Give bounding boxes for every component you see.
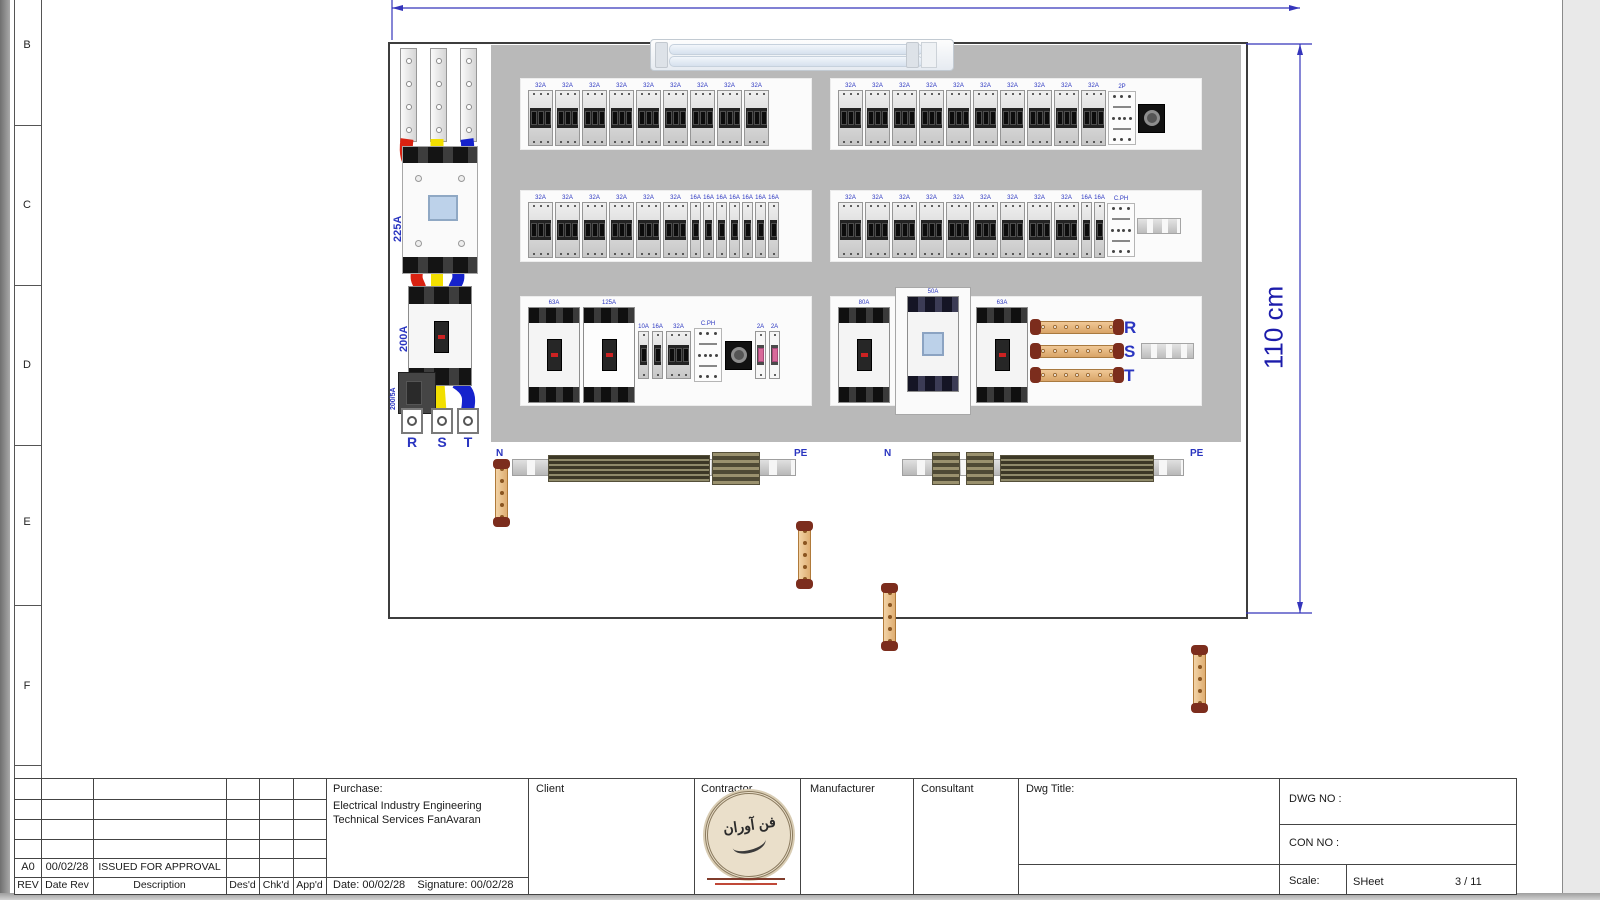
mcb-3pole: 32A bbox=[1000, 82, 1025, 146]
breaker-rating-label: 16A bbox=[729, 194, 740, 202]
terminal-strip bbox=[548, 455, 710, 482]
breaker-rating-label: 32A bbox=[1007, 82, 1018, 90]
purchase-line2: Technical Services FanAvaran bbox=[333, 814, 481, 826]
breaker-rating-label: 16A bbox=[742, 194, 753, 202]
breaker-rating-label: 32A bbox=[1034, 82, 1045, 90]
mcb-3pole: 32A bbox=[919, 194, 944, 258]
mcb-1pole: 16A bbox=[1094, 194, 1105, 258]
breaker-rating-label: 63A bbox=[549, 299, 560, 307]
purchase-line1: Electrical Industry Engineering bbox=[333, 800, 482, 812]
signature-label: Signature: bbox=[417, 879, 467, 891]
control-relay: C.PH bbox=[694, 320, 722, 382]
main-breaker-rating-label: 200A bbox=[398, 326, 410, 352]
zone-divider bbox=[14, 605, 41, 606]
breaker-group-row2-left: 32A32A32A32A32A32A16A16A16A16A16A16A16A bbox=[520, 190, 812, 262]
device-label: C.PH bbox=[701, 320, 715, 328]
neutral-bus-label: N bbox=[496, 448, 503, 459]
breaker-rating-label: 32A bbox=[589, 194, 600, 202]
dwg-no-label: DWG NO : bbox=[1289, 793, 1342, 805]
mcb-3pole: 32A bbox=[582, 194, 607, 258]
neutral-busbar bbox=[883, 586, 896, 648]
sheet-label: SHeet bbox=[1353, 876, 1384, 888]
breaker-rating-label: 50A bbox=[928, 288, 939, 296]
breaker-rating-label: 32A bbox=[953, 82, 964, 90]
breaker-rating-label: 16A bbox=[1094, 194, 1105, 202]
mcb-3pole: 32A bbox=[555, 194, 580, 258]
breaker-group-row2-right: 32A32A32A32A32A32A32A32A32A16A16AC.PH bbox=[830, 190, 1202, 262]
neutral-bus-label: N bbox=[884, 448, 891, 459]
rev-date-header: Date Rev bbox=[41, 879, 93, 891]
breaker-rating-label: 32A bbox=[562, 82, 573, 90]
control-relay: 2P bbox=[1108, 83, 1136, 145]
breaker-group-row1-right: 32A32A32A32A32A32A32A32A32A32A2P bbox=[830, 78, 1202, 150]
zone-letter-f: F bbox=[14, 680, 40, 692]
breaker-rating-label: 32A bbox=[616, 82, 627, 90]
mcb-1pole: 16A bbox=[768, 194, 779, 258]
busbar-row: T bbox=[1033, 367, 1136, 384]
incomer-contactor bbox=[402, 146, 478, 274]
mcb-aux: 2A bbox=[769, 323, 780, 379]
busbar-row: S bbox=[1033, 343, 1136, 360]
lamp-endcap bbox=[906, 42, 919, 68]
con-no-label: CON NO : bbox=[1289, 837, 1339, 849]
copper-busbar bbox=[1033, 369, 1121, 382]
mcb-3pole: 32A bbox=[919, 82, 944, 146]
contactor-window bbox=[428, 195, 458, 221]
breaker-rating-label: 32A bbox=[872, 194, 883, 202]
breaker-rating-label: 32A bbox=[899, 82, 910, 90]
mcb-3pole: 32A bbox=[555, 82, 580, 146]
mcb-3pole: 32A bbox=[838, 82, 863, 146]
date-label: Date: bbox=[333, 879, 359, 891]
mcb-1pole: 16A bbox=[755, 194, 766, 258]
breaker-rating-label: 32A bbox=[845, 82, 856, 90]
mccb-breaker: 63A bbox=[976, 299, 1028, 403]
terminal-block-large bbox=[712, 452, 760, 485]
breaker-rating-label: 32A bbox=[953, 194, 964, 202]
rev-header: REV bbox=[15, 879, 41, 891]
mcb-3pole: 32A bbox=[865, 194, 890, 258]
mcb-aux: 2A bbox=[755, 323, 766, 379]
lamp-endcap bbox=[655, 42, 668, 68]
mccb-breaker: 80A bbox=[838, 299, 890, 403]
neutral-busbar bbox=[495, 462, 508, 524]
breaker-rating-label: 32A bbox=[872, 82, 883, 90]
pe-busbar bbox=[798, 524, 811, 586]
approved-header: App'd bbox=[293, 879, 326, 891]
zone-divider bbox=[14, 285, 41, 286]
manufacturer-label: Manufacturer bbox=[810, 783, 875, 795]
sheet-number: 3 / 11 bbox=[1455, 876, 1482, 888]
breaker-rating-label: 80A bbox=[859, 299, 870, 307]
timer-device bbox=[725, 333, 752, 370]
mcb-3pole: 32A bbox=[582, 82, 607, 146]
mcb-3pole: 32A bbox=[1081, 82, 1106, 146]
logo-caption-line bbox=[715, 883, 777, 885]
breaker-rating-label: 16A bbox=[652, 323, 663, 331]
breaker-rating-label: 32A bbox=[670, 194, 681, 202]
breaker-rating-label: 32A bbox=[1088, 82, 1099, 90]
timer-device bbox=[1138, 96, 1165, 133]
breaker-rating-label: 32A bbox=[535, 82, 546, 90]
phase-label-t: T bbox=[457, 434, 479, 450]
breaker-rating-label: 32A bbox=[926, 194, 937, 202]
breaker-rating-label: 16A bbox=[716, 194, 727, 202]
rev-value: A0 bbox=[15, 861, 41, 873]
breaker-rating-label: 16A bbox=[768, 194, 779, 202]
vertical-busbar-s bbox=[430, 48, 447, 142]
breaker-rating-label: 32A bbox=[1007, 194, 1018, 202]
breaker-rating-label: 32A bbox=[845, 194, 856, 202]
mcb-1pole: 10A bbox=[638, 323, 649, 379]
mcb-3pole: 32A bbox=[636, 82, 661, 146]
mccb-breaker: 63A bbox=[528, 299, 580, 403]
terminal-block-large bbox=[932, 452, 960, 485]
mcb-1pole: 16A bbox=[652, 323, 663, 379]
consultant-label: Consultant bbox=[921, 783, 974, 795]
contractor-stamp-logo: فن آوران bbox=[705, 791, 793, 879]
busbar-phase-label: T bbox=[1124, 367, 1134, 384]
contactor: 50A bbox=[895, 287, 971, 415]
breaker-rating-label: 32A bbox=[724, 82, 735, 90]
purchase-label: Purchase: bbox=[333, 783, 383, 795]
mcb-3pole: 32A bbox=[690, 82, 715, 146]
panel-lamp bbox=[650, 39, 954, 71]
breaker-rating-label: 32A bbox=[643, 194, 654, 202]
breaker-rating-label: 32A bbox=[673, 323, 684, 331]
breaker-rating-label: 32A bbox=[562, 194, 573, 202]
scale-label: Scale: bbox=[1289, 875, 1320, 887]
breaker-rating-label: 32A bbox=[535, 194, 546, 202]
pe-bus-label: PE bbox=[1190, 448, 1203, 459]
copper-busbar bbox=[1033, 321, 1121, 334]
mcb-3pole: 32A bbox=[609, 82, 634, 146]
terminal-strip bbox=[1000, 455, 1154, 482]
mcb-3pole: 32A bbox=[1027, 194, 1052, 258]
logo-caption-line bbox=[707, 878, 785, 880]
control-relay: C.PH bbox=[1107, 195, 1135, 257]
breaker-group-row3-left: 63A125A10A16A32AC.PH2A2A bbox=[520, 296, 812, 406]
zone-strip bbox=[14, 0, 42, 778]
description-header: Description bbox=[93, 879, 226, 891]
mcb-3pole: 32A bbox=[946, 82, 971, 146]
mcb-3pole: 32A bbox=[663, 194, 688, 258]
breaker-rating-label: 16A bbox=[703, 194, 714, 202]
breaker-rating-label: 32A bbox=[697, 82, 708, 90]
mcb-3pole: 32A bbox=[892, 194, 917, 258]
mcb-1pole: 16A bbox=[729, 194, 740, 258]
mcb-3pole: 32A bbox=[892, 82, 917, 146]
mcb-3pole: 32A bbox=[838, 194, 863, 258]
drawing-viewer: B C D E F 32A32A32A32A32A32A32A32A32A 32… bbox=[0, 0, 1600, 900]
breaker-rating-label: 32A bbox=[1034, 194, 1045, 202]
mcb-3pole: 32A bbox=[528, 82, 553, 146]
mcb-1pole: 16A bbox=[716, 194, 727, 258]
mcb-3pole: 32A bbox=[973, 82, 998, 146]
signature-value: 00/02/28 bbox=[471, 879, 514, 891]
phase-lug-t bbox=[457, 408, 479, 434]
distribution-busbars: RST bbox=[1033, 319, 1136, 384]
breaker-rating-label: 32A bbox=[616, 194, 627, 202]
breaker-group-row1-left: 32A32A32A32A32A32A32A32A32A bbox=[520, 78, 812, 150]
lamp-tube bbox=[669, 56, 923, 67]
left-window-edge bbox=[0, 0, 10, 900]
breaker-rating-label: 32A bbox=[980, 82, 991, 90]
breaker-rating-label: 2A bbox=[757, 323, 764, 331]
zone-letter-c: C bbox=[14, 199, 40, 211]
din-rail-piece bbox=[1137, 218, 1181, 234]
pe-bus-label: PE bbox=[794, 448, 807, 459]
mcb-3pole: 32A bbox=[744, 82, 769, 146]
mcb-1pole: 16A bbox=[703, 194, 714, 258]
mcb-3pole: 32A bbox=[1054, 194, 1079, 258]
mcb-3pole: 32A bbox=[528, 194, 553, 258]
din-rail-piece bbox=[1141, 343, 1194, 359]
breaker-rating-label: 32A bbox=[980, 194, 991, 202]
breaker-rating-label: 16A bbox=[690, 194, 701, 202]
rev-description-value: ISSUED FOR APPROVAL bbox=[93, 861, 226, 873]
breaker-group-row3-right: 80A50A63ARST bbox=[830, 296, 1202, 406]
phase-label-s: S bbox=[431, 434, 453, 450]
mcb-1pole: 16A bbox=[690, 194, 701, 258]
dwg-title-label: Dwg Title: bbox=[1026, 783, 1074, 795]
mccb-breaker: 125A bbox=[583, 299, 635, 403]
zone-divider bbox=[14, 125, 41, 126]
height-dimension-label: 110 cm bbox=[1259, 286, 1290, 370]
date-signature-row: Date: 00/02/28 Signature: 00/02/28 bbox=[333, 879, 513, 891]
zone-letter-b: B bbox=[14, 39, 40, 51]
breaker-rating-label: 32A bbox=[670, 82, 681, 90]
breaker-rating-label: 2A bbox=[771, 323, 778, 331]
breaker-rating-label: 32A bbox=[1061, 82, 1072, 90]
mcb-3pole: 32A bbox=[1027, 82, 1052, 146]
breaker-rating-label: 32A bbox=[589, 82, 600, 90]
lamp-connector bbox=[921, 42, 937, 68]
mcb-3pole: 32A bbox=[609, 194, 634, 258]
phase-lug-s bbox=[431, 408, 453, 434]
right-window-edge bbox=[1562, 0, 1600, 900]
device-label: 2P bbox=[1118, 83, 1125, 91]
busbar-phase-label: R bbox=[1124, 319, 1136, 336]
device-label: C.PH bbox=[1114, 195, 1128, 203]
incomer-main-breaker bbox=[408, 286, 472, 386]
copper-busbar bbox=[1033, 345, 1121, 358]
title-block: A0 00/02/28 ISSUED FOR APPROVAL REV Date… bbox=[14, 778, 1517, 895]
breaker-rating-label: 10A bbox=[638, 323, 649, 331]
mcb-3pole: 32A bbox=[663, 82, 688, 146]
phase-label-r: R bbox=[401, 434, 423, 450]
checked-header: Chk'd bbox=[259, 879, 293, 891]
vertical-busbar-r bbox=[400, 48, 417, 142]
terminal-block-large bbox=[966, 452, 994, 485]
breaker-rating-label: 63A bbox=[997, 299, 1008, 307]
mcb-3pole: 32A bbox=[1054, 82, 1079, 146]
breaker-rating-label: 32A bbox=[751, 82, 762, 90]
mcb-1pole: 16A bbox=[742, 194, 753, 258]
pe-busbar bbox=[1193, 648, 1206, 710]
date-value: 00/02/28 bbox=[362, 879, 405, 891]
mcb-1pole: 16A bbox=[1081, 194, 1092, 258]
designed-header: Des'd bbox=[226, 879, 259, 891]
breaker-rating-label: 125A bbox=[602, 299, 616, 307]
mcb-3pole: 32A bbox=[1000, 194, 1025, 258]
mcb-3pole: 32A bbox=[666, 323, 691, 379]
mcb-3pole: 32A bbox=[946, 194, 971, 258]
breaker-rating-label: 16A bbox=[755, 194, 766, 202]
mcb-3pole: 32A bbox=[973, 194, 998, 258]
breaker-rating-label: 32A bbox=[1061, 194, 1072, 202]
breaker-rating-label: 32A bbox=[899, 194, 910, 202]
mcb-3pole: 32A bbox=[636, 194, 661, 258]
busbar-phase-label: S bbox=[1124, 343, 1135, 360]
ct-rating-label: 200/5A bbox=[390, 387, 397, 410]
breaker-rating-label: 32A bbox=[643, 82, 654, 90]
zone-divider bbox=[14, 765, 41, 766]
client-label: Client bbox=[536, 783, 564, 795]
mcb-3pole: 32A bbox=[717, 82, 742, 146]
vertical-busbar-t bbox=[460, 48, 477, 142]
breaker-rating-label: 16A bbox=[1081, 194, 1092, 202]
breaker-rating-label: 32A bbox=[926, 82, 937, 90]
contactor-rating-label: 225A bbox=[392, 216, 404, 242]
mcb-3pole: 32A bbox=[865, 82, 890, 146]
rev-date-value: 00/02/28 bbox=[41, 861, 93, 873]
phase-lug-r bbox=[401, 408, 423, 434]
zone-letter-e: E bbox=[14, 516, 40, 528]
busbar-row: R bbox=[1033, 319, 1136, 336]
zone-letter-d: D bbox=[14, 359, 40, 371]
lamp-tube bbox=[669, 44, 923, 55]
zone-divider bbox=[14, 445, 41, 446]
